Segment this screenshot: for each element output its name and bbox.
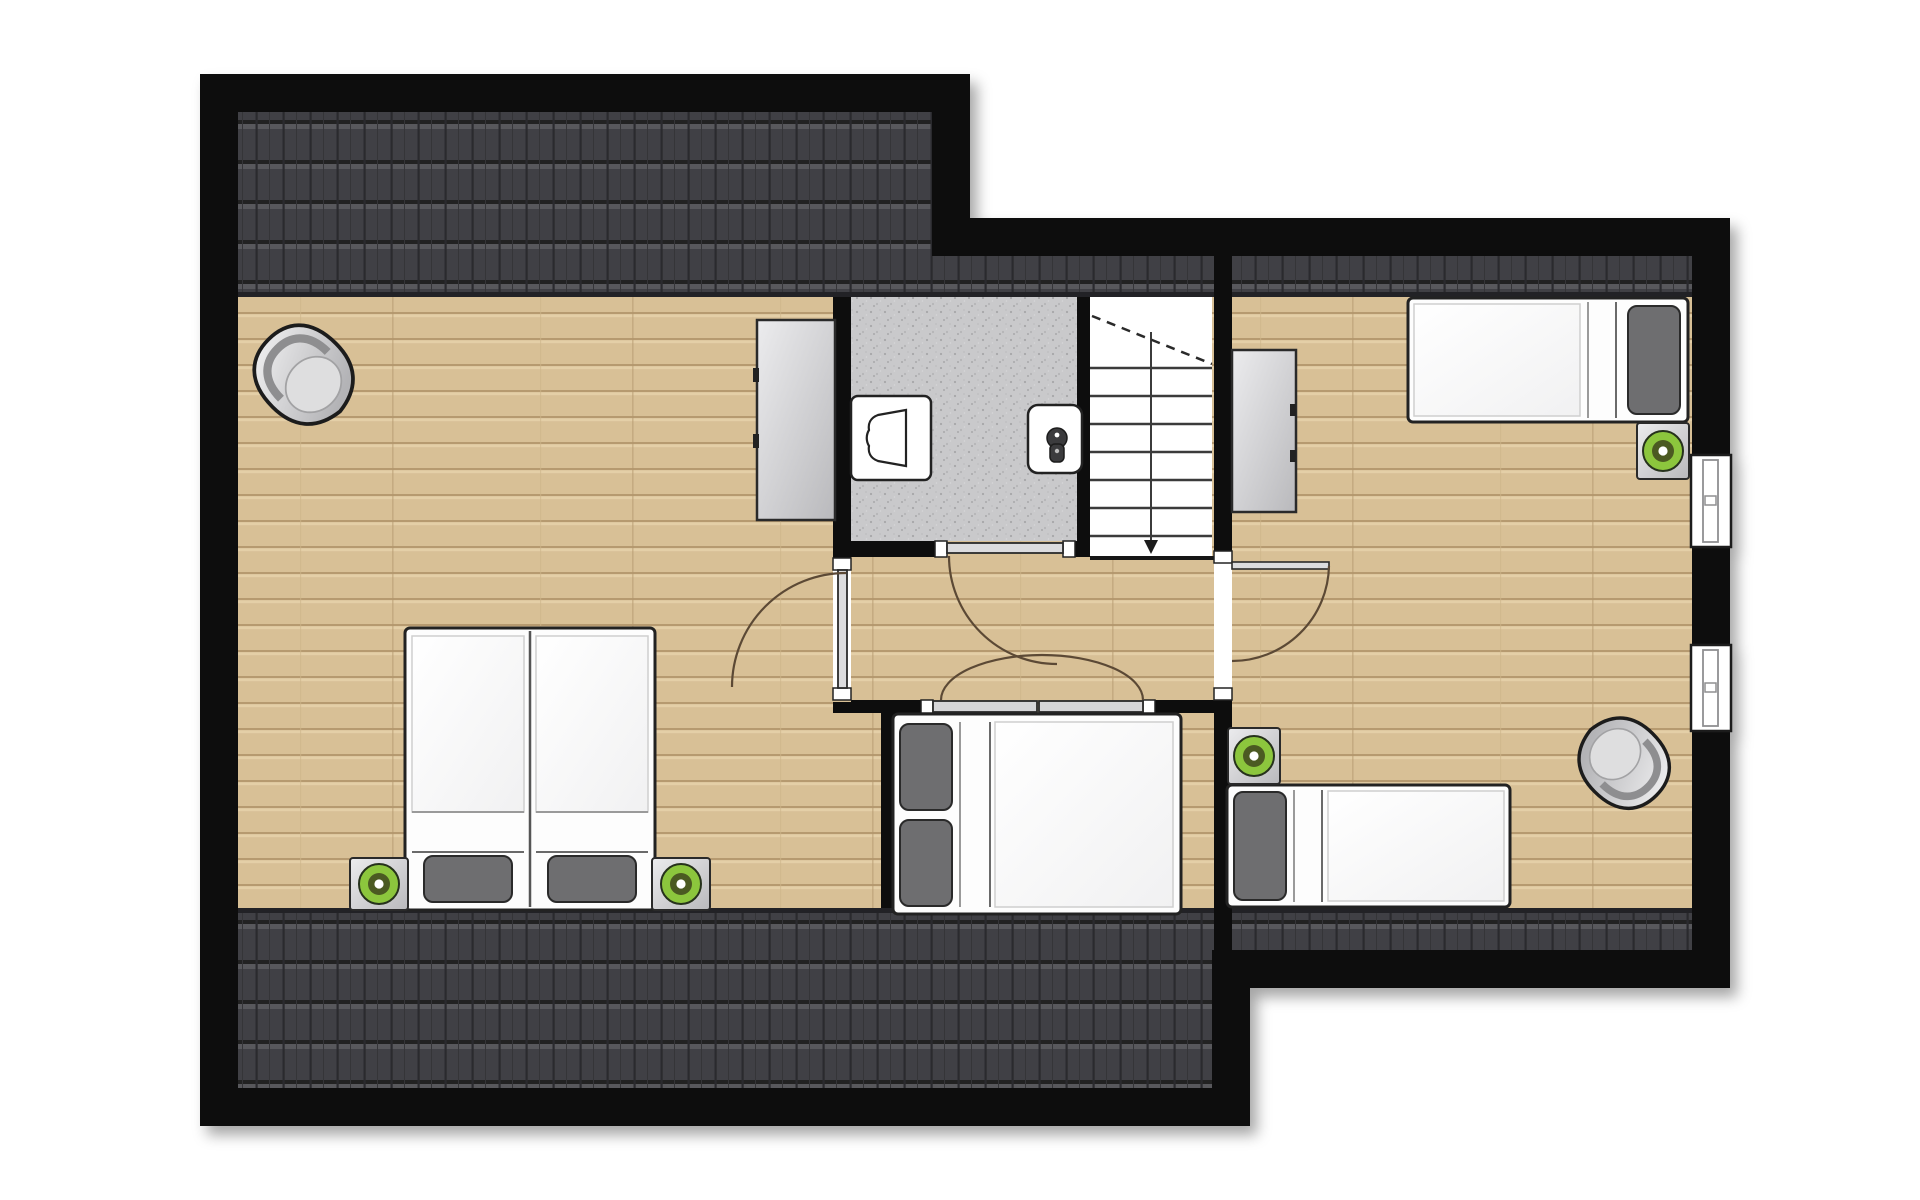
duvet [1328, 791, 1504, 901]
door-leaf-left [933, 701, 1037, 712]
roof-eave-line-top [238, 292, 1692, 297]
lamp-icon [1234, 736, 1274, 776]
floor-plan-svg [0, 0, 1920, 1200]
wardrobe-right-room [1232, 350, 1296, 512]
pillow [424, 856, 512, 902]
lamp-icon [661, 864, 701, 904]
hinge-icon [1290, 404, 1296, 416]
nightstand [350, 858, 408, 910]
window-right-top [1691, 455, 1731, 547]
pillow [1628, 306, 1680, 414]
landing-area [851, 557, 1214, 703]
pillow [548, 856, 636, 902]
roof-bottom-left [238, 908, 1212, 1088]
toilet-bowl-icon [867, 410, 906, 466]
nightstand [1228, 728, 1280, 784]
double-bed-middle [893, 714, 1181, 914]
building [200, 74, 1731, 1126]
roof-bottom-right [1212, 908, 1692, 950]
window-right-bottom [1691, 645, 1731, 731]
toilet [851, 396, 931, 480]
single-bed-bottom-right [1227, 785, 1510, 907]
hinge-icon [1290, 450, 1296, 462]
washbasin [1028, 405, 1082, 473]
door-leaf [1232, 562, 1329, 569]
floor-plan-page [0, 0, 1920, 1200]
hinge-icon [753, 368, 759, 382]
single-bed-top-right [1408, 298, 1688, 422]
duvet [995, 722, 1173, 907]
roof-top-left [238, 112, 932, 297]
door-leaf [947, 543, 1063, 553]
roof-top-right [932, 256, 1692, 297]
lamp-icon [1643, 431, 1683, 471]
duvet [412, 636, 524, 812]
duvet [536, 636, 648, 812]
nightstand [1637, 423, 1689, 479]
wardrobe-left-room [753, 320, 835, 520]
pillow [900, 724, 952, 810]
door-leaf [838, 570, 847, 688]
pillow [1234, 792, 1286, 900]
door-leaf-right [1039, 701, 1143, 712]
duvet [1414, 304, 1580, 416]
pillow [900, 820, 952, 906]
double-bed-left [405, 628, 655, 910]
nightstand [652, 858, 710, 910]
lamp-icon [359, 864, 399, 904]
hinge-icon [753, 434, 759, 448]
